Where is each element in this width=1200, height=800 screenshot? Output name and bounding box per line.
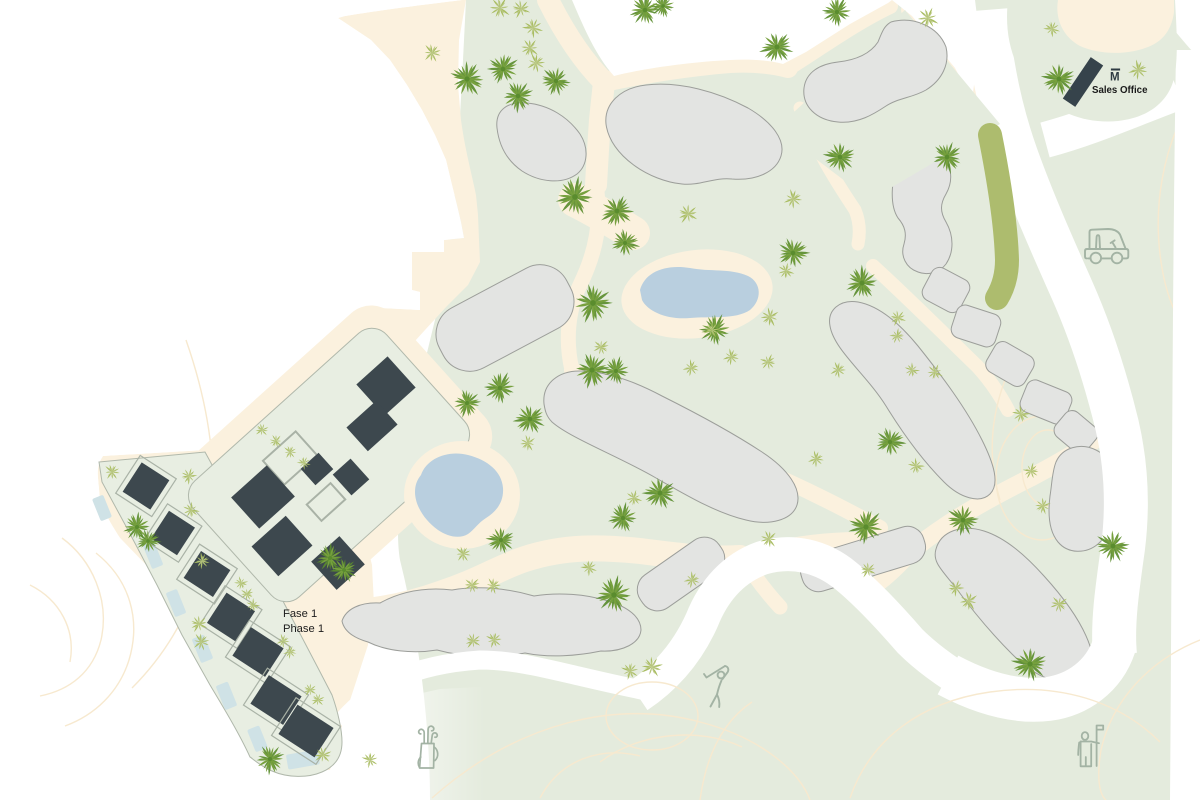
svg-text:Fase 1: Fase 1 [283, 608, 317, 620]
svg-text:M: M [1110, 72, 1120, 84]
svg-text:Sales Office: Sales Office [1092, 85, 1148, 96]
svg-text:Phase 1: Phase 1 [283, 623, 324, 635]
